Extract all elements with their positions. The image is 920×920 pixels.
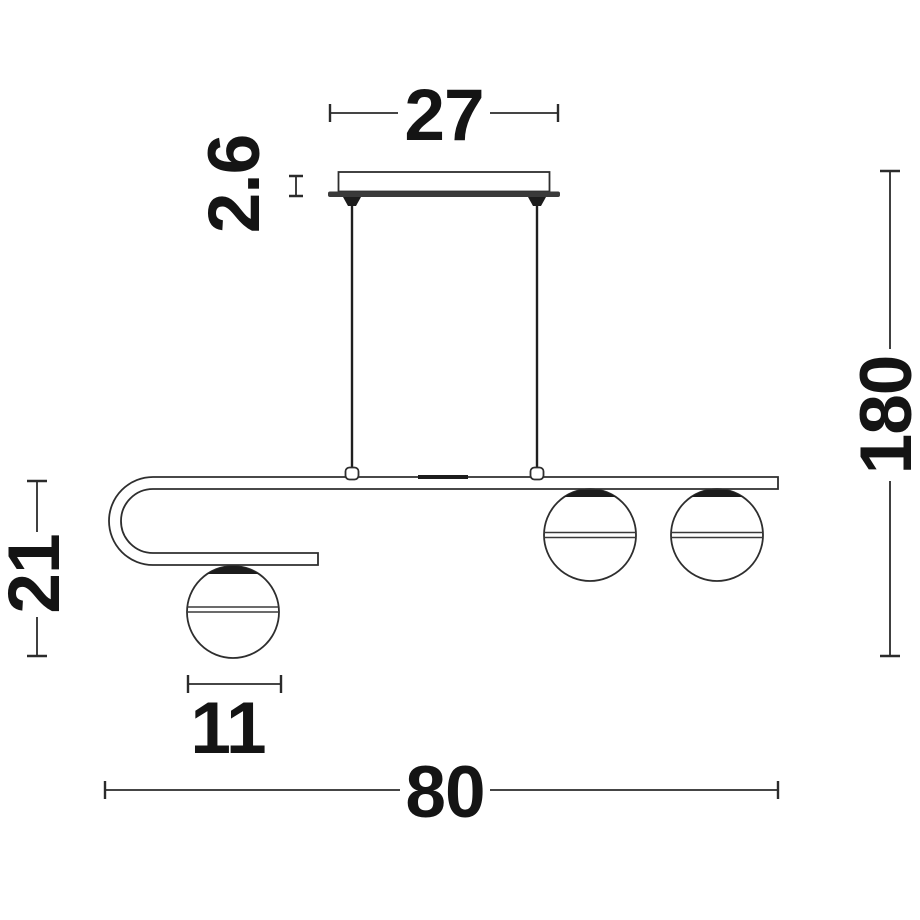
dim-label-overall-height: 180 [846, 356, 920, 475]
dim-globe-diameter: 11 [188, 675, 281, 769]
dim-label-left-drop: 21 [0, 534, 75, 613]
globe-right-cap [691, 489, 743, 497]
dim-label-overall-width: 80 [405, 752, 484, 833]
dim-label-canopy-width: 27 [404, 75, 483, 156]
canopy-base-plate [328, 192, 560, 198]
ceiling-canopy [328, 172, 560, 206]
dim-label-globe-diameter: 11 [190, 688, 265, 769]
globe-right [671, 489, 763, 581]
globe-left [187, 566, 279, 658]
rod-connector-left [346, 468, 359, 480]
dim-left-drop: 21 [0, 481, 75, 656]
rod-connector-right [531, 468, 544, 480]
canopy-rod-joint-left [343, 197, 361, 206]
drawing-canvas: 27 2.6 21 180 11 80 [0, 0, 920, 920]
bar-curve-inner [121, 489, 153, 553]
canopy-body [339, 172, 550, 192]
bar-seam [418, 475, 468, 479]
dim-overall-height: 180 [846, 171, 920, 656]
globe-left-cap [207, 566, 259, 574]
suspension [346, 204, 544, 480]
globe-middle-cap [564, 489, 616, 497]
dim-canopy-thickness: 2.6 [194, 135, 303, 233]
globe-middle [544, 489, 636, 581]
dim-label-canopy-thickness: 2.6 [194, 135, 275, 233]
dim-canopy-width: 27 [330, 75, 558, 156]
globe-middle-glass [544, 489, 636, 581]
canopy-rod-joint-right [528, 197, 546, 206]
bar-return-band [153, 553, 318, 565]
globe-right-glass [671, 489, 763, 581]
dimension-drawing: 27 2.6 21 180 11 80 [0, 0, 920, 920]
